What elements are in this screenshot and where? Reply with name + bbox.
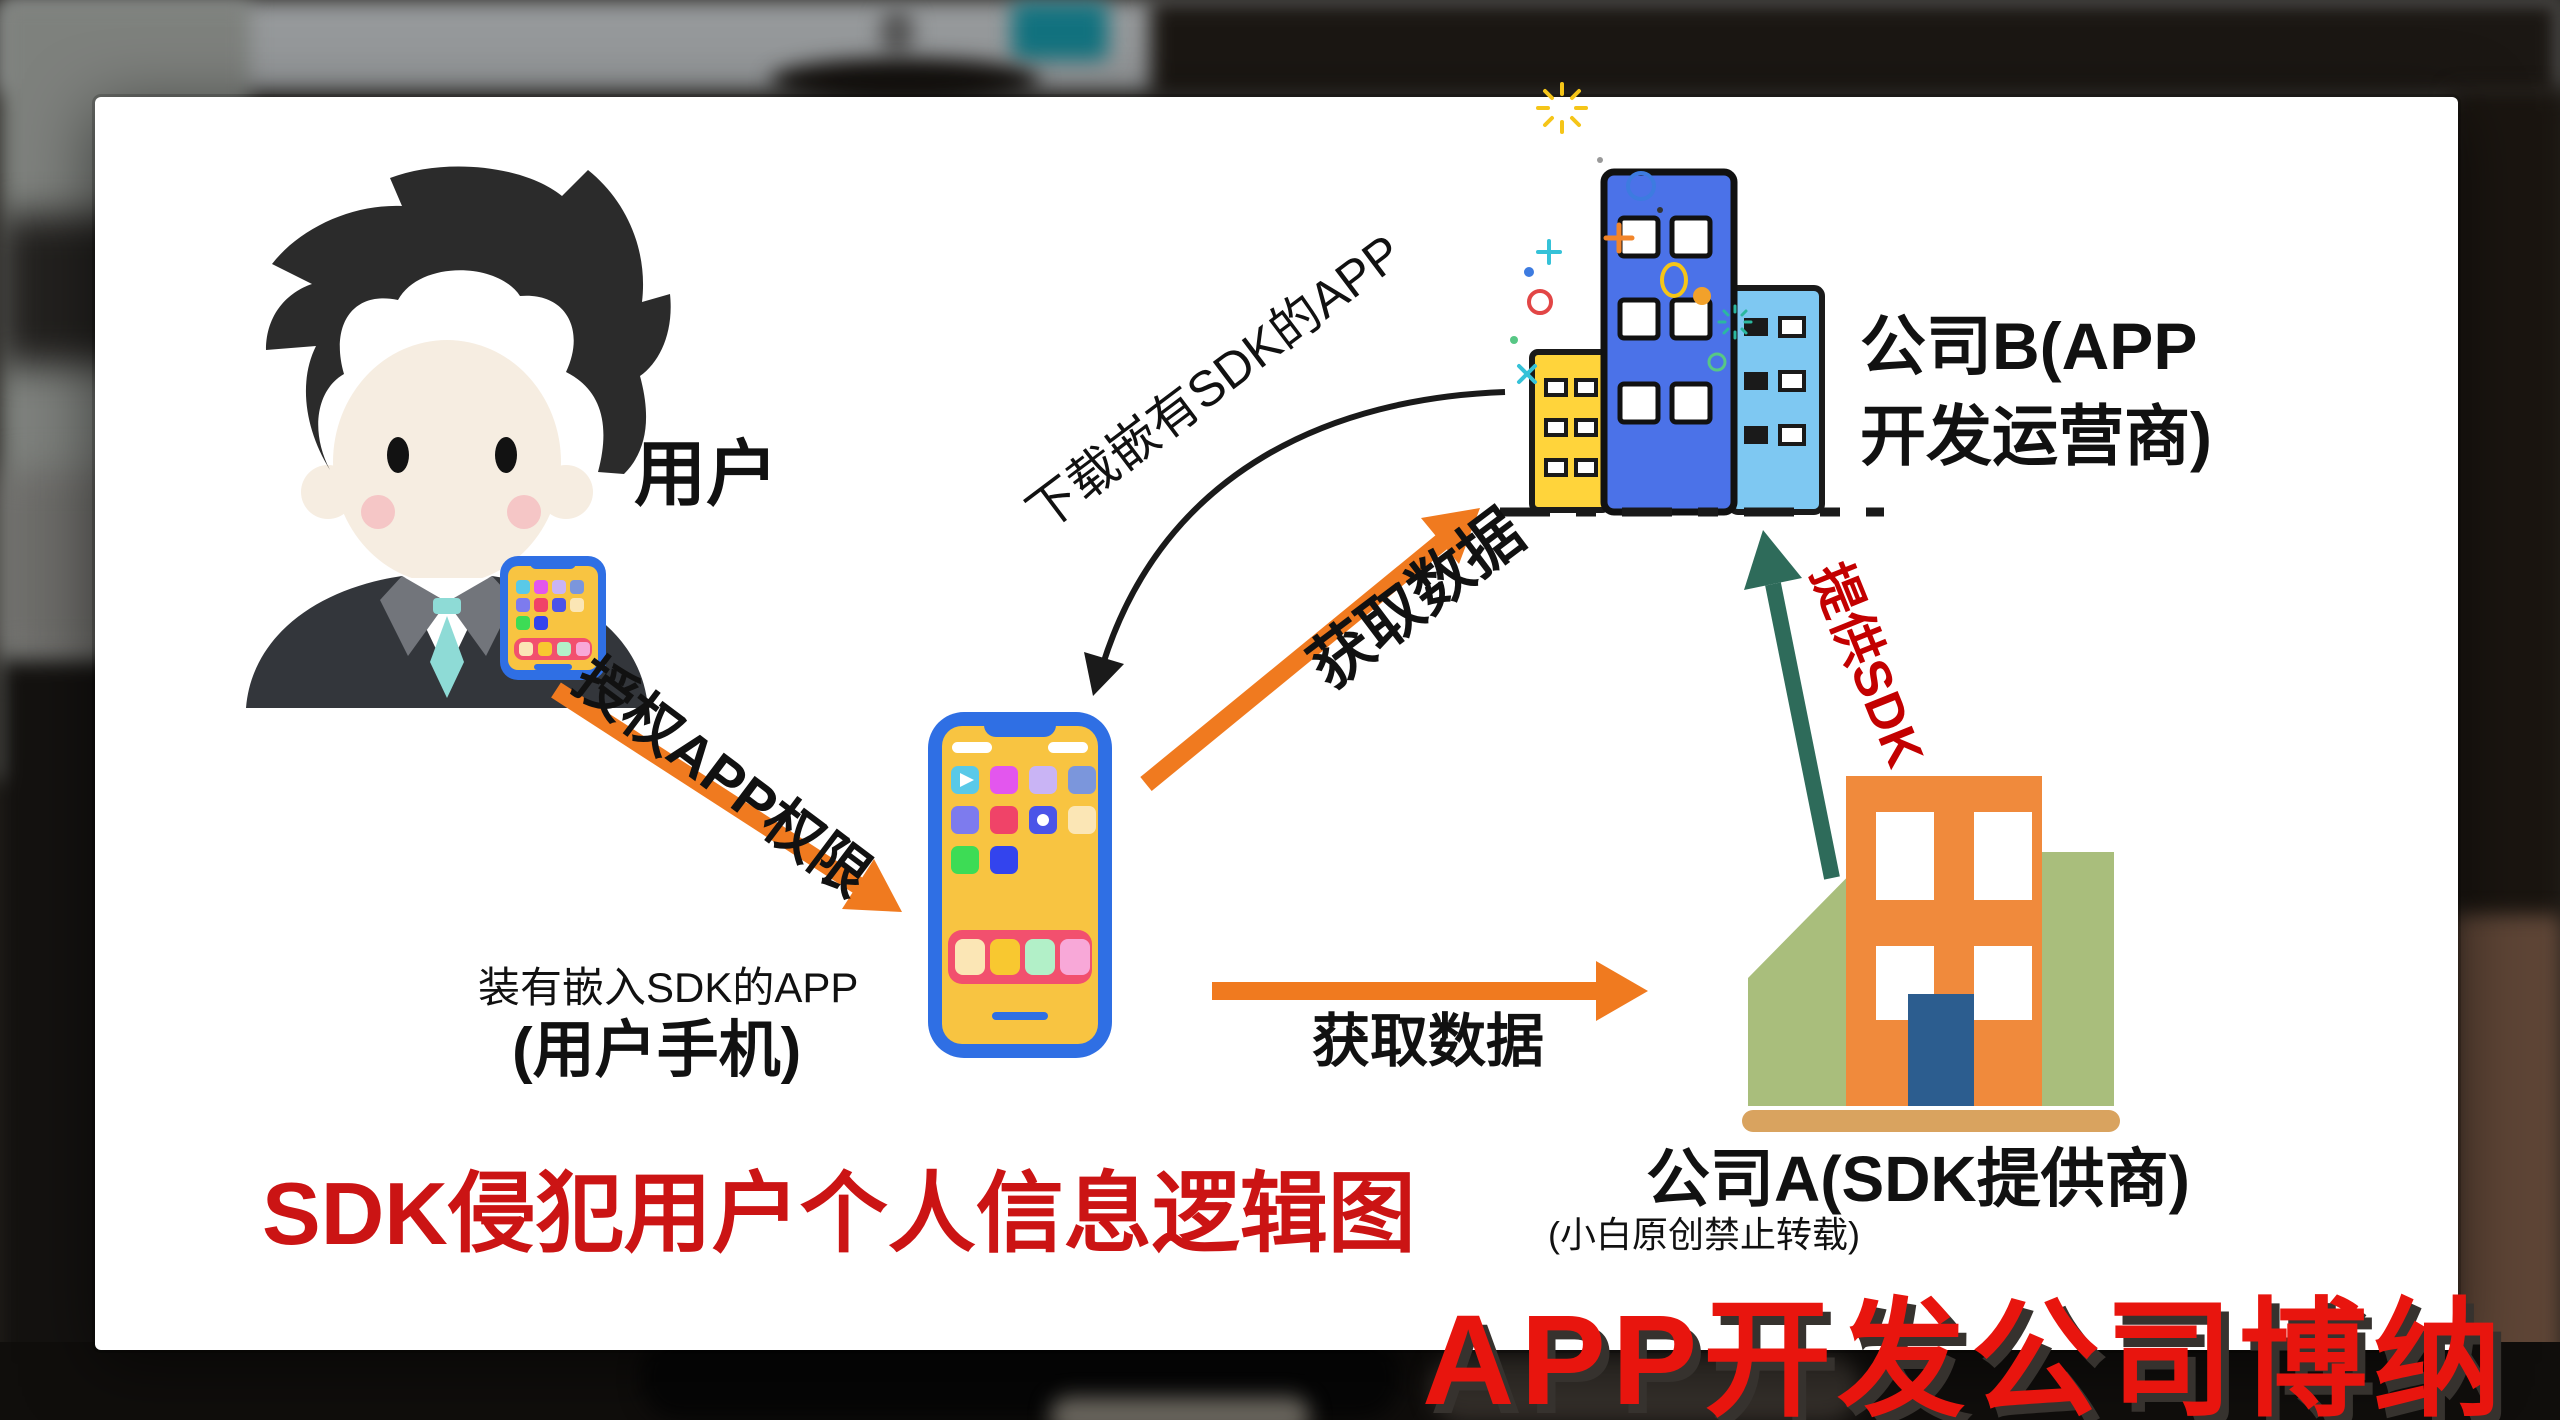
company-b-label-line2: 开发运营商) (1860, 402, 2212, 471)
poster-title-note: (小白原创禁止转载) (1548, 1216, 1860, 1254)
phone-caption-line1: 装有嵌入SDK的APP (478, 966, 858, 1010)
background-monitor-icon (1012, 2, 1108, 60)
watermark-text: APP开发公司博纳 (1422, 1294, 2507, 1420)
background-small-glyph (880, 8, 914, 56)
poster-title: SDK侵犯用户个人信息逻辑图 (262, 1168, 1416, 1260)
get-data-a-label: 获取数据 (1312, 1012, 1544, 1073)
user-label: 用户 (634, 438, 778, 514)
company-a-label: 公司A(SDK提供商) (1646, 1146, 2190, 1213)
phone-caption-line2: (用户手机) (512, 1018, 801, 1083)
background-top-right-dark (1150, 0, 2560, 100)
background-table-glint (1050, 1396, 1310, 1420)
company-b-label-line1: 公司B(APP (1860, 312, 2197, 381)
infographic-stage: 用户 授权APP权限 下载嵌有SDK的APP 获取数据 获取数据 提供SDK 公… (0, 0, 2560, 1420)
background-right-dark-column (2452, 90, 2560, 920)
